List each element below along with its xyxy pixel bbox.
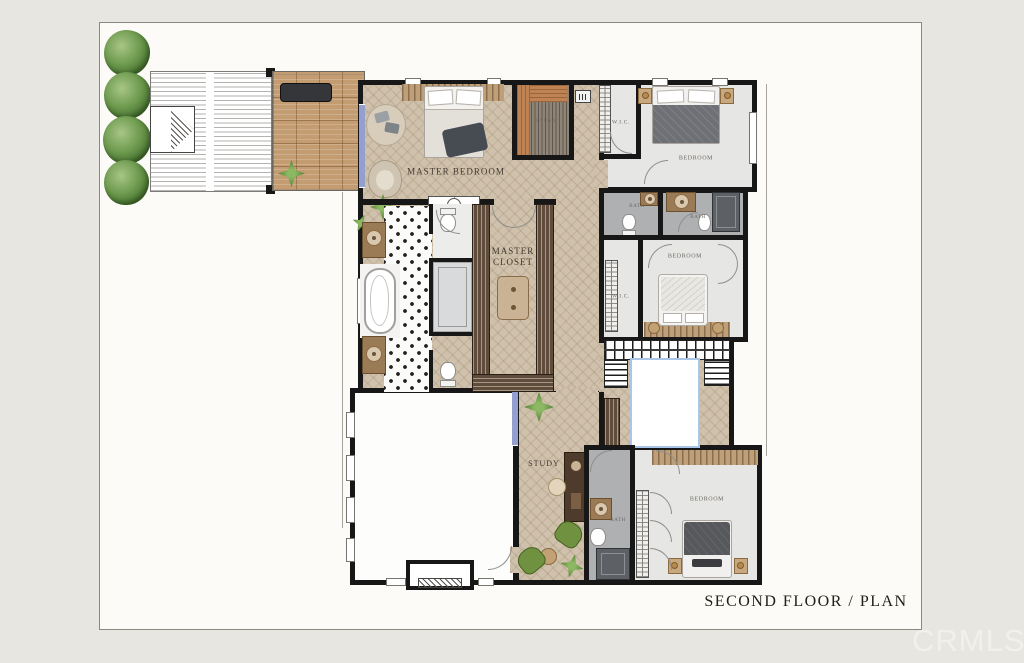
hall-opening: [556, 388, 598, 400]
closet-wardrobe: [472, 374, 554, 392]
sauna-heater: [575, 90, 591, 103]
crmls-watermark: CRMLS: [912, 623, 1024, 659]
desk-chair: [548, 478, 566, 496]
pillow: [657, 89, 685, 103]
bed: [682, 520, 732, 578]
hall-opening: [594, 160, 608, 188]
armchair: [368, 160, 402, 198]
duvet: [653, 105, 719, 143]
bed: [652, 86, 720, 144]
window-balcony: [359, 104, 365, 188]
chaise: [366, 104, 406, 146]
lamp: [671, 562, 678, 569]
deck-divider: [206, 72, 214, 191]
shower-glass: [438, 267, 467, 327]
pillow: [428, 89, 454, 106]
window: [346, 538, 355, 562]
lamp: [642, 92, 649, 99]
window: [346, 497, 355, 523]
stair-treads: [704, 360, 730, 386]
pillow: [688, 89, 716, 103]
toilet-tank: [440, 380, 456, 387]
lamp: [724, 92, 731, 99]
deck-landing-hatch: [171, 107, 194, 152]
sink-basin: [674, 194, 689, 209]
plan-title: SECOND FLOOR / PLAN: [700, 593, 912, 611]
duvet: [684, 522, 730, 555]
bathtub: [364, 268, 396, 334]
fireplace-bay: [406, 560, 474, 590]
tub-inner: [370, 275, 389, 326]
window: [386, 578, 406, 586]
sink-basin: [594, 502, 608, 516]
island-knob: [511, 287, 516, 292]
interior-wall: [599, 154, 641, 159]
pouf: [712, 322, 724, 334]
label-bath-1: BATH: [629, 204, 644, 210]
linen-shelf: [599, 85, 611, 153]
sink-basin: [366, 230, 382, 246]
label-wic-top: W.I.C.: [612, 120, 630, 127]
closet-wardrobe: [472, 204, 490, 392]
property-line-left: [342, 192, 343, 528]
closet-island: [497, 276, 529, 320]
toilet: [622, 214, 636, 230]
shower-dark: [712, 192, 740, 232]
shower-dark: [596, 548, 630, 580]
label-master-bedroom: MASTER BEDROOM: [407, 167, 505, 178]
partition-wall: [429, 350, 433, 392]
window: [712, 78, 728, 86]
balcony-bench: [280, 83, 332, 102]
window: [749, 112, 757, 164]
label-bedroom-top: BEDROOM: [679, 155, 713, 162]
duvet: [661, 277, 705, 311]
label-bedroom-bottom: BEDROOM: [690, 496, 724, 503]
label-sauna: SAUNA: [536, 119, 556, 125]
heater-grill: [579, 94, 587, 100]
fireplace-hatch: [418, 578, 462, 588]
stair-void: [630, 358, 700, 448]
floorplan-page: MASTER BEDROOM MASTER CLOSET SAUNA W.I.C…: [0, 0, 1024, 663]
shower-glass: [716, 196, 736, 228]
label-master-closet: MASTER CLOSET: [490, 246, 536, 268]
closet-shelf: [636, 490, 649, 578]
label-bath-bottom: BATH: [610, 518, 625, 524]
island-knob: [511, 305, 516, 310]
tree-icon: [103, 116, 151, 164]
stair-rail: [604, 349, 730, 351]
label-bedroom-mid: BEDROOM: [668, 253, 702, 260]
armchair-seat: [376, 170, 394, 190]
sink-basin: [644, 193, 656, 205]
label-bath-2: BATH: [690, 215, 705, 221]
window: [478, 578, 494, 586]
pouf: [648, 322, 660, 334]
stair-treads: [604, 360, 628, 388]
property-line-right: [766, 84, 767, 456]
closet-wardrobe: [536, 204, 554, 392]
partition-wall: [432, 332, 472, 336]
label-study: STUDY: [528, 459, 560, 469]
tree-icon: [104, 30, 150, 76]
window: [346, 412, 355, 438]
window: [346, 455, 355, 481]
interior-wall: [362, 199, 430, 205]
toilet: [590, 528, 606, 546]
bed-bench: [692, 559, 722, 567]
sink-basin: [366, 346, 382, 362]
pillow: [663, 313, 682, 323]
deck-landing: [150, 106, 195, 153]
desk-item: [571, 493, 581, 509]
pillow: [456, 89, 482, 106]
sauna-bench: [517, 85, 530, 155]
shower-glass: [601, 553, 625, 575]
desk-item: [571, 461, 581, 471]
tree-icon: [104, 72, 151, 119]
label-wic-mid: W.I.C.: [612, 294, 630, 301]
toilet: [440, 362, 456, 380]
window: [652, 78, 668, 86]
bed: [658, 274, 708, 326]
tree-icon: [104, 160, 149, 205]
hall-wardrobe: [604, 398, 620, 448]
pillow: [685, 313, 704, 323]
shower: [433, 262, 472, 332]
lamp: [737, 562, 744, 569]
pillow: [384, 122, 400, 134]
